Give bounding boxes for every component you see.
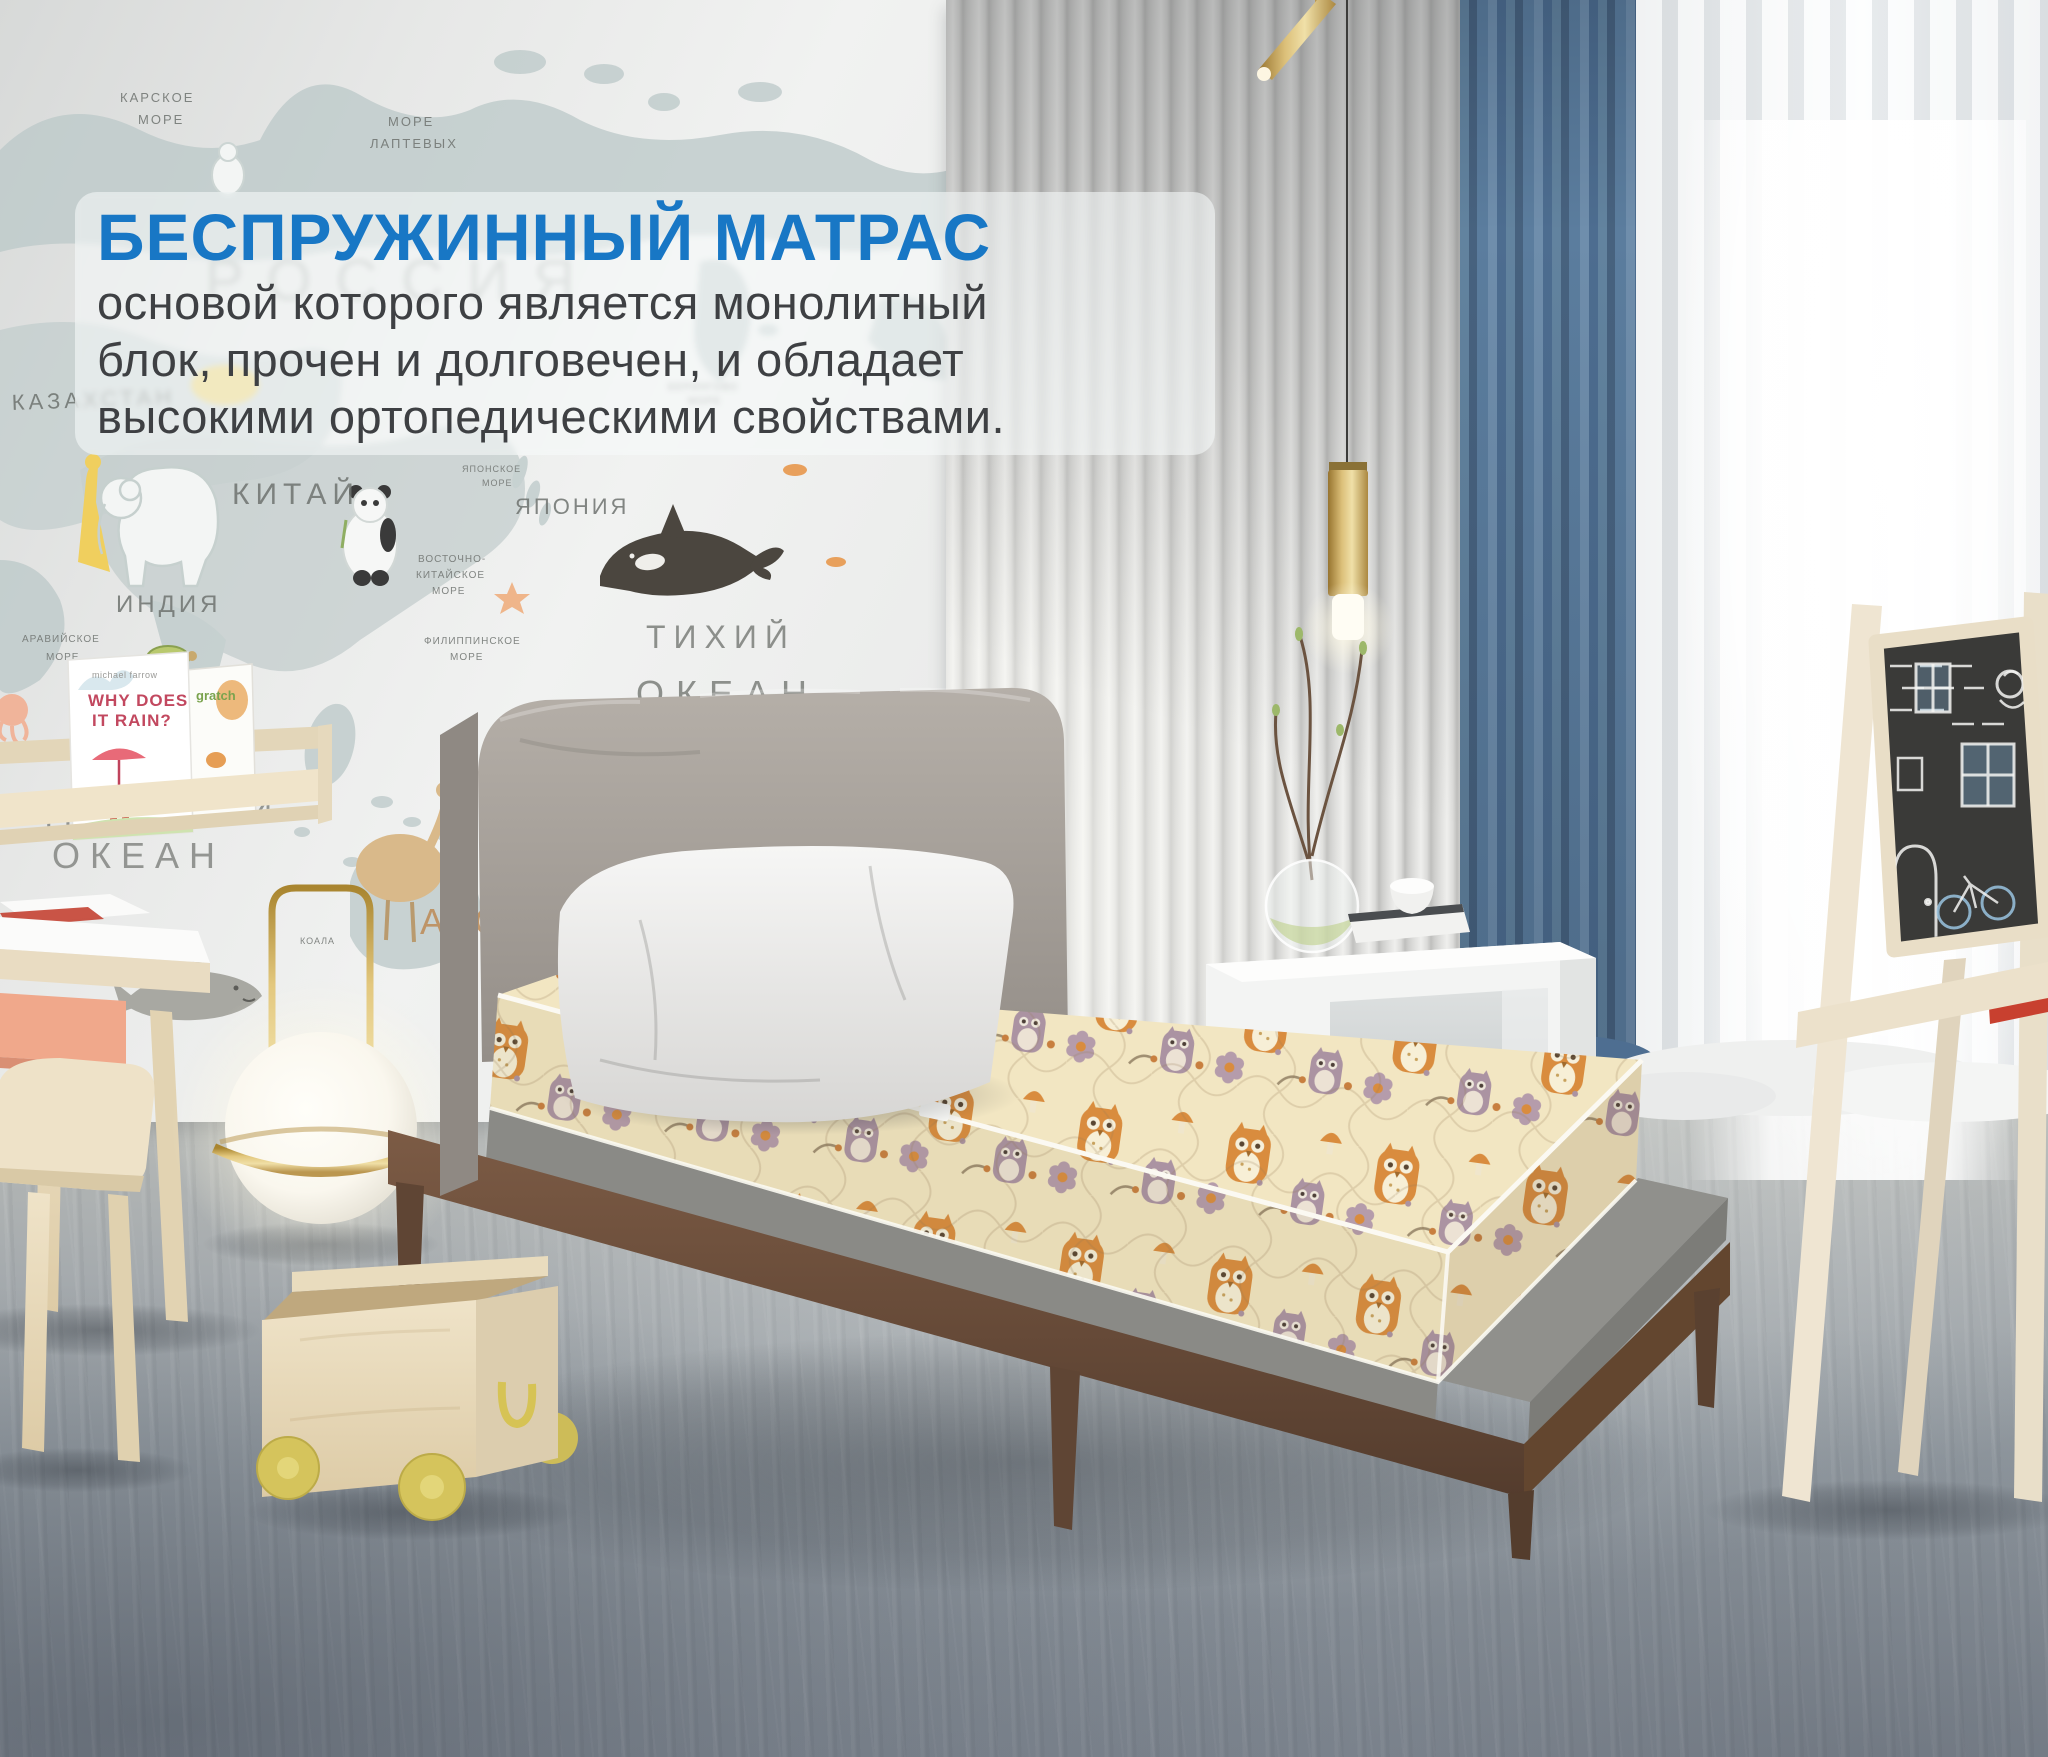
branch-vase [1266, 627, 1367, 952]
bed-leg [1694, 1288, 1720, 1408]
svg-text:michael farrow: michael farrow [92, 670, 158, 680]
cart-wheel [257, 1437, 319, 1499]
children-bedroom-product-photo: КАРСКОЕ МОРЕ МОРЕ ЛАПТЕВЫХ РОССИЯ КАЗАХС… [0, 0, 2048, 1757]
promo-text-panel: БЕСПРУЖИННЫЙ МАТРАС основой которого явл… [75, 192, 1215, 455]
toy-cart [247, 1256, 578, 1540]
bookshelf: gratch michael farrow WHY DOES IT RAIN? [0, 652, 332, 845]
promo-line-2: блок, прочен и долговечен, и обладает [97, 331, 1189, 388]
bed-leg [1508, 1490, 1534, 1560]
svg-text:IT RAIN?: IT RAIN? [92, 711, 172, 730]
promo-line-1: основой которого является монолитный [97, 274, 1189, 331]
cart-wheel [399, 1454, 465, 1520]
ceiling-lamp [1257, 0, 1336, 81]
easel-rear-leg [1898, 958, 1966, 1476]
bed [388, 688, 1730, 1592]
promo-line-3: высокими ортопедическими свойствами. [97, 388, 1189, 445]
table-drawer [0, 993, 126, 1065]
pendant-lamp [1302, 0, 1394, 674]
headboard-side [440, 712, 478, 1196]
svg-text:gratch: gratch [196, 688, 236, 703]
svg-text:WHY DOES: WHY DOES [88, 691, 188, 710]
floor-lamp [171, 888, 471, 1278]
promo-title: БЕСПРУЖИННЫЙ МАТРАС [97, 200, 1189, 274]
